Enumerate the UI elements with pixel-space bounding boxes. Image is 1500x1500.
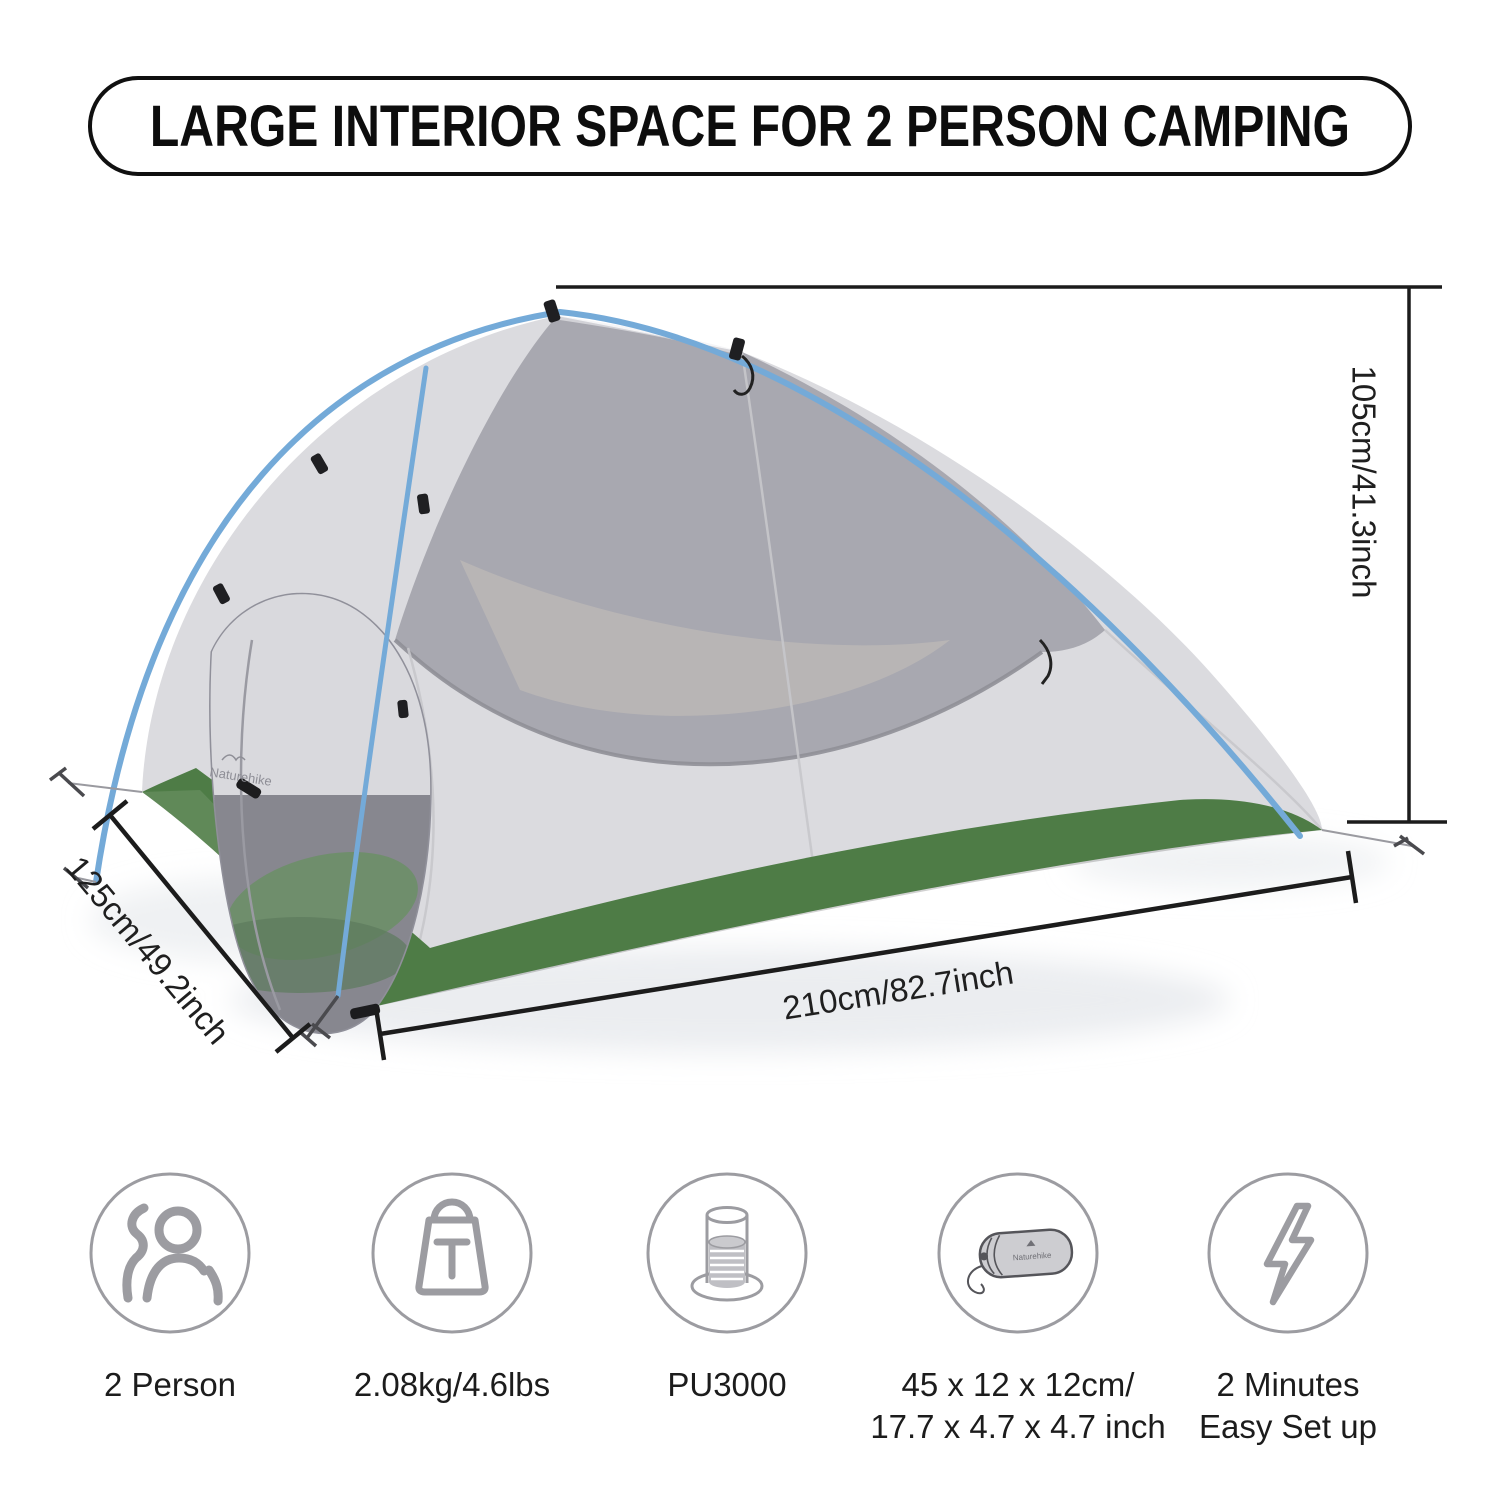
quick-setup-icon	[1205, 1170, 1371, 1336]
waterproof-rating-icon	[644, 1170, 810, 1336]
feature-item-waterproof: PU3000	[602, 1170, 852, 1406]
feature-label: 2 Minutes Easy Set up	[1199, 1364, 1377, 1448]
feature-label: PU3000	[667, 1364, 786, 1406]
title-banner: LARGE INTERIOR SPACE FOR 2 PERSON CAMPIN…	[88, 76, 1412, 176]
feature-item-capacity: 2 Person	[45, 1170, 295, 1406]
feature-label: 2 Person	[104, 1364, 236, 1406]
height-dimension-label: 105cm/41.3inch	[1346, 366, 1383, 599]
feature-item-setup-time: 2 Minutes Easy Set up	[1143, 1170, 1433, 1448]
feature-item-weight: 2.08kg/4.6lbs	[312, 1170, 592, 1406]
packed-size-icon: Naturehike	[935, 1170, 1101, 1336]
weight-icon	[369, 1170, 535, 1336]
two-person-icon	[87, 1170, 253, 1336]
product-infographic: Naturehike	[0, 0, 1500, 1500]
feature-label: 45 x 12 x 12cm/ 17.7 x 4.7 x 4.7 inch	[870, 1364, 1165, 1448]
feature-label: 2.08kg/4.6lbs	[354, 1364, 550, 1406]
page-title: LARGE INTERIOR SPACE FOR 2 PERSON CAMPIN…	[150, 93, 1350, 160]
tent-body: Naturehike	[50, 299, 1424, 1046]
